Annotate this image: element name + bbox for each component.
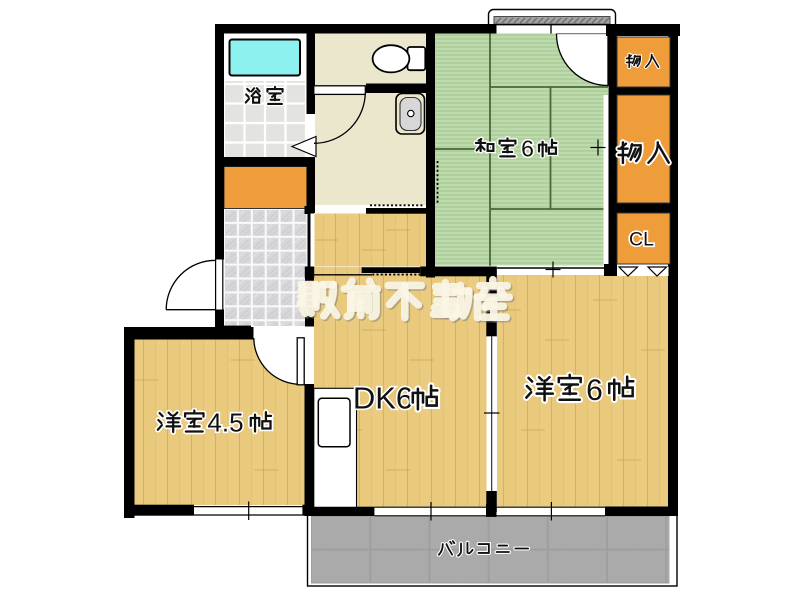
svg-text:6: 6 — [586, 374, 603, 407]
svg-text:4.5: 4.5 — [207, 408, 243, 438]
svg-text:DK6: DK6 — [353, 381, 413, 416]
svg-text:CL: CL — [629, 229, 654, 251]
svg-text:6: 6 — [521, 136, 534, 162]
